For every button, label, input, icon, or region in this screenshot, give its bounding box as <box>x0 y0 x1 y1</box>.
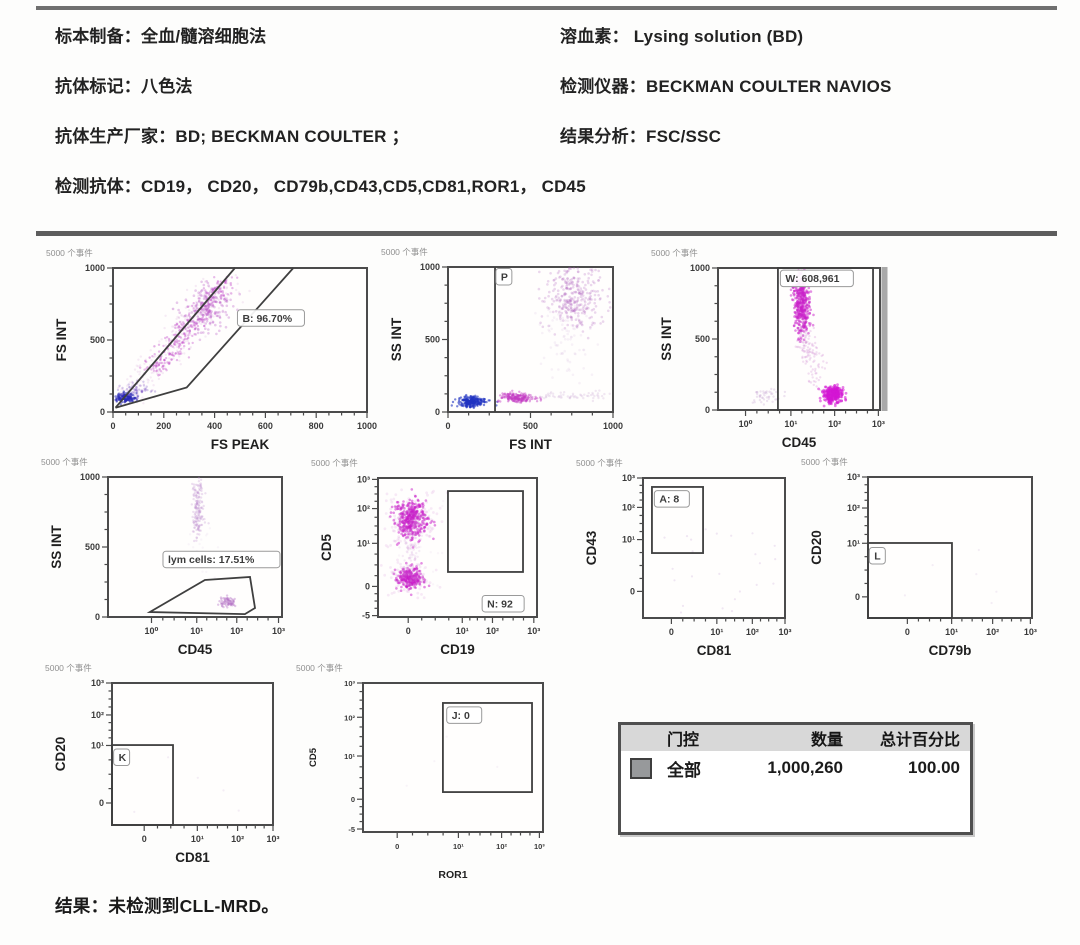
flow-plot-cd5-vs-cd19: 5000 个事件010¹10²10³10³10²10¹0-5N: 92CD19C… <box>293 452 555 675</box>
flow-plot-cd5-vs-ror1: 5000 个事件010¹10²10³10³10²10¹0-5J: 0ROR1CD… <box>278 657 561 890</box>
gate-label: lym cells: 17.51% <box>163 551 280 568</box>
x-tick-label: 10¹ <box>190 626 203 636</box>
x-tick-label: 10⁰ <box>739 419 753 429</box>
flow-plot-ssint-vs-cd45-lym: 5000 个事件10⁰10¹10²10³10005000lym cells: 1… <box>23 451 300 675</box>
x-tick-label: 10² <box>486 626 499 636</box>
x-tick-label: 10² <box>746 627 759 637</box>
flow-plot-cd43-vs-cd81: 5000 个事件010¹10²10³10³10²10¹0A: 8CD81CD43 <box>558 452 803 676</box>
x-tick-label: 10³ <box>272 626 285 636</box>
x-tick-label: 10¹ <box>456 626 469 636</box>
events-count-label: 5000 个事件 <box>45 663 92 673</box>
x-axis-label: CD45 <box>782 435 817 450</box>
gate-name-cell: 全部 <box>667 756 731 781</box>
gate-label: W: 608,961 <box>780 270 853 287</box>
gate-label-text: W: 608,961 <box>785 273 839 285</box>
gate-stats-table: 门控 数量 总计百分比 全部 1,000,260 100.00 <box>618 722 973 835</box>
y-tick-label: 1000 <box>420 262 440 272</box>
y-axis-label: SS INT <box>389 317 404 361</box>
x-axis-label: CD81 <box>697 643 732 658</box>
x-tick-label: 200 <box>156 421 171 431</box>
y-tick-label: 0 <box>99 798 104 808</box>
events-count-label: 5000 个事件 <box>41 457 88 467</box>
y-tick-label: 0 <box>351 795 355 804</box>
col-header-gate: 门控 <box>667 726 731 750</box>
y-tick-label: 10¹ <box>847 538 860 548</box>
plot-box <box>112 683 273 825</box>
y-tick-label: 1000 <box>80 472 100 482</box>
x-tick-label: 10³ <box>1024 627 1037 637</box>
y-tick-label: 10² <box>91 710 104 720</box>
gate-label-text: lym cells: 17.51% <box>168 554 255 566</box>
gate-label: B: 96.70% <box>237 310 304 327</box>
x-tick-label: 10² <box>230 626 243 636</box>
y-tick-label: 500 <box>695 334 710 344</box>
gate-label: A: 8 <box>654 491 689 508</box>
report-page: 标本制备：全血/髓溶细胞法抗体标记：八色法抗体生产厂家：BD; BECKMAN … <box>0 0 1080 945</box>
y-tick-label: -5 <box>362 611 370 621</box>
y-axis-label: CD20 <box>809 530 824 565</box>
y-axis-label: CD5 <box>308 747 319 767</box>
y-tick-label: 10³ <box>622 473 635 483</box>
y-tick-label: 0 <box>705 405 710 415</box>
flow-plot-fsint-vs-fspeak: 5000 个事件0200400600800100010005000B: 96.7… <box>28 242 385 470</box>
flow-plot-cd20-vs-cd81: 5000 个事件010¹10²10³10³10²10¹0KCD81CD20 <box>27 657 291 883</box>
y-tick-label: 500 <box>425 335 440 345</box>
x-tick-label: 400 <box>207 421 222 431</box>
gate-color-swatch <box>630 758 652 779</box>
x-tick-label: 600 <box>258 421 273 431</box>
y-axis-label: SS INT <box>659 316 674 360</box>
gate-label-text: P <box>501 271 508 283</box>
flow-plot-cd20-vs-cd79b: 5000 个事件010¹10²10³10³10²10¹0LCD79bCD20 <box>783 451 1050 676</box>
y-tick-label: -5 <box>348 825 355 834</box>
gate-label: J: 0 <box>447 707 482 723</box>
y-axis-label: FS INT <box>54 318 69 362</box>
gate-stats-row: 全部 1,000,260 100.00 <box>621 751 970 785</box>
y-tick-label: 0 <box>435 407 440 417</box>
plot-box <box>363 683 543 832</box>
gate-label: N: 92 <box>482 595 524 612</box>
y-tick-label: 1000 <box>85 263 105 273</box>
gate-label: K <box>114 749 130 766</box>
x-axis-label: FS PEAK <box>211 437 270 452</box>
y-tick-label: 10³ <box>91 678 104 688</box>
y-tick-label: 10² <box>357 504 370 514</box>
y-tick-label: 10² <box>622 502 635 512</box>
y-tick-label: 10³ <box>344 679 355 688</box>
plot-box <box>868 477 1032 618</box>
x-axis-label: CD19 <box>440 642 475 657</box>
result-text: 结果：未检测到CLL-MRD。 <box>55 893 279 918</box>
x-tick-label: 0 <box>110 421 115 431</box>
y-tick-label: 0 <box>855 592 860 602</box>
x-tick-label: 10¹ <box>191 834 204 844</box>
x-tick-label: 0 <box>406 626 411 636</box>
x-axis-label: CD79b <box>929 643 972 658</box>
events-count-label: 5000 个事件 <box>651 248 698 258</box>
y-tick-label: 10¹ <box>91 740 104 750</box>
x-tick-label: 0 <box>395 842 399 851</box>
events-count-label: 5000 个事件 <box>381 247 428 257</box>
x-tick-label: 10¹ <box>453 842 464 851</box>
plot-box <box>108 477 282 617</box>
x-tick-label: 10³ <box>872 419 885 429</box>
y-tick-label: 10² <box>344 713 355 722</box>
events-count-label: 5000 个事件 <box>311 458 358 468</box>
gate-label: L <box>869 548 885 565</box>
y-tick-label: 10¹ <box>344 752 355 761</box>
y-axis-label: CD5 <box>319 534 334 561</box>
events-count-label: 5000 个事件 <box>576 458 623 468</box>
y-axis-label: SS INT <box>49 524 64 568</box>
x-axis-label: ROR1 <box>438 869 467 881</box>
gate-label-text: L <box>874 551 881 563</box>
x-tick-label: 10¹ <box>784 419 797 429</box>
gate-stats-header-row: 门控 数量 总计百分比 <box>621 725 970 751</box>
gate-label-text: B: 96.70% <box>242 313 292 325</box>
y-tick-label: 0 <box>630 586 635 596</box>
x-tick-label: 10² <box>231 834 244 844</box>
x-tick-label: 0 <box>142 834 147 844</box>
flow-plot-ssint-vs-fsint: 5000 个事件0500100010005000PFS INTSS INT <box>363 241 631 470</box>
gate-label-text: A: 8 <box>659 494 679 506</box>
x-tick-label: 10³ <box>527 626 540 636</box>
x-axis-label: CD81 <box>175 850 210 865</box>
gate-label-text: K <box>119 752 127 764</box>
plot-box <box>448 267 613 412</box>
gate-count-cell: 1,000,260 <box>731 758 843 778</box>
y-tick-label: 10¹ <box>622 535 635 545</box>
y-tick-label: 10² <box>847 503 860 513</box>
plot-right-shadow <box>882 267 888 411</box>
col-header-count: 数量 <box>731 726 843 750</box>
x-tick-label: 10² <box>986 627 999 637</box>
x-tick-label: 10² <box>828 419 841 429</box>
x-tick-label: 0 <box>905 627 910 637</box>
y-tick-label: 10³ <box>847 472 860 482</box>
x-tick-label: 800 <box>309 421 324 431</box>
events-count-label: 5000 个事件 <box>801 457 848 467</box>
gate-percent-cell: 100.00 <box>843 758 970 778</box>
x-tick-label: 0 <box>445 421 450 431</box>
x-tick-label: 1000 <box>603 421 623 431</box>
x-tick-label: 10¹ <box>945 627 958 637</box>
y-tick-label: 1000 <box>690 263 710 273</box>
col-header-percent: 总计百分比 <box>843 726 970 750</box>
x-tick-label: 10⁰ <box>145 626 159 636</box>
x-tick-label: 10¹ <box>710 627 723 637</box>
y-tick-label: 10³ <box>357 474 370 484</box>
y-tick-label: 10¹ <box>357 538 370 548</box>
gate-label: P <box>496 268 512 285</box>
gate-label-text: N: 92 <box>487 598 513 610</box>
x-tick-label: 10³ <box>534 842 545 851</box>
x-axis-label: FS INT <box>509 437 553 452</box>
y-axis-label: CD43 <box>584 530 599 565</box>
y-tick-label: 500 <box>90 335 105 345</box>
y-axis-label: CD20 <box>53 737 68 772</box>
x-tick-label: 0 <box>669 627 674 637</box>
y-tick-label: 0 <box>365 581 370 591</box>
y-tick-label: 0 <box>100 407 105 417</box>
x-tick-label: 500 <box>523 421 538 431</box>
events-count-label: 5000 个事件 <box>296 663 343 673</box>
y-tick-label: 500 <box>85 542 100 552</box>
flow-plot-ssint-vs-cd45-w: 5000 个事件10⁰10¹10²10³10005000W: 608,961CD… <box>633 242 898 468</box>
x-tick-label: 10² <box>496 842 507 851</box>
events-count-label: 5000 个事件 <box>46 248 93 258</box>
y-tick-label: 0 <box>95 612 100 622</box>
gate-label-text: J: 0 <box>452 710 470 722</box>
x-axis-label: CD45 <box>178 642 213 657</box>
